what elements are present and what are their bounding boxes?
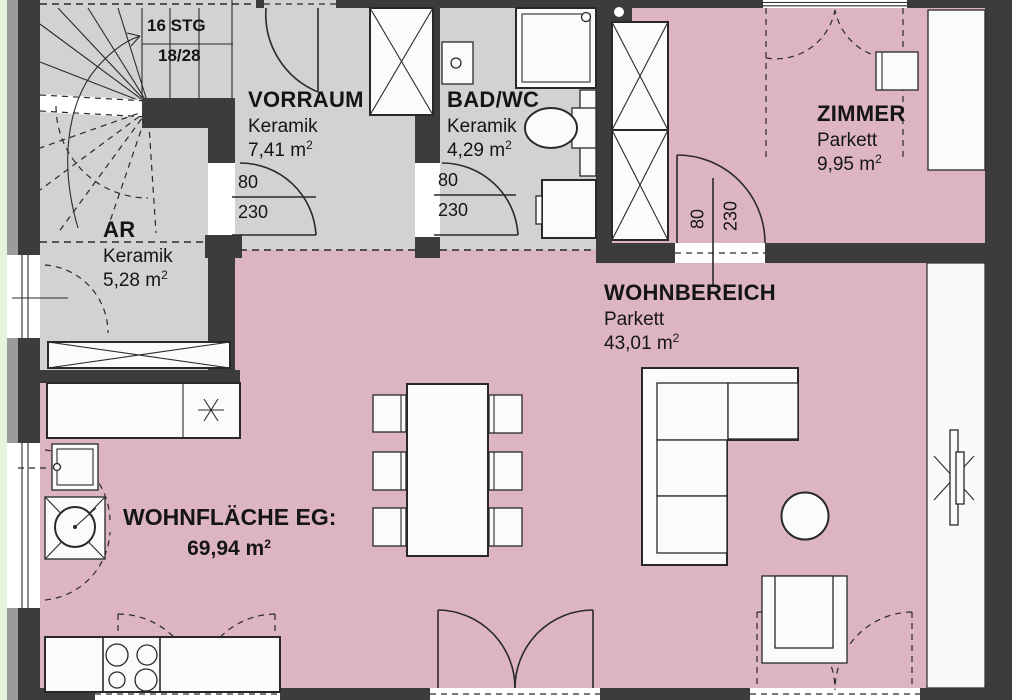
- floor-plan: 16 STG 18/28 VORRAUM Keramik 7,41 m2 BAD…: [0, 0, 1012, 700]
- room-area: 5,28 m2: [103, 271, 173, 291]
- kitchen-counter-bottom: [45, 637, 280, 692]
- shaft-duct-icon: [614, 7, 624, 17]
- zimmer-window-opening: [763, 0, 907, 8]
- outside-strip: [0, 0, 7, 700]
- zimmer-bottom-wall: [596, 243, 985, 263]
- burner: [135, 669, 157, 691]
- ar-bottom-wall: [40, 370, 240, 383]
- zimmer-nightstand: [876, 52, 918, 90]
- ar-cabinet: [48, 342, 230, 368]
- room-name: ZIMMER: [817, 102, 906, 125]
- zimmer-closet: [928, 10, 985, 170]
- ar-window-opening: [18, 255, 40, 338]
- zimmer-door-width: 80: [689, 209, 708, 229]
- room-area: 43,01 m2: [604, 334, 776, 354]
- room-label-zimmer: ZIMMER Parkett 9,95 m2: [817, 102, 906, 175]
- vorraum-door-width: 80: [238, 173, 258, 192]
- tv-cabinet: [762, 576, 847, 663]
- room-floor: Keramik: [103, 247, 173, 267]
- washing-machine: [536, 180, 596, 238]
- stairs-note-line2: 18/28: [158, 47, 201, 65]
- left-wall: [18, 0, 40, 255]
- room-name: AR: [103, 218, 173, 241]
- room-name: VORRAUM: [248, 88, 364, 111]
- top-wall: [344, 0, 763, 8]
- kitchen-counter-top: [47, 383, 240, 438]
- burner: [106, 644, 128, 666]
- shower: [516, 8, 596, 88]
- burner: [109, 672, 125, 688]
- room-floor: Parkett: [817, 131, 906, 151]
- dishwasher: [52, 444, 98, 490]
- room-name: BAD/WC: [447, 88, 539, 111]
- bad-door-height: 230: [438, 201, 468, 220]
- room-area: 4,29 m2: [447, 141, 539, 161]
- dining-table: [407, 384, 488, 556]
- room-label-ar: AR Keramik 5,28 m2: [103, 218, 173, 291]
- burner: [137, 645, 157, 665]
- room-name: WOHNBEREICH: [604, 281, 776, 304]
- room-label-vorraum: VORRAUM Keramik 7,41 m2: [248, 88, 364, 161]
- room-label-wohnbereich: WOHNBEREICH Parkett 43,01 m2: [604, 281, 776, 354]
- vorraum-door-opening: [208, 163, 235, 237]
- dining-set: [373, 384, 522, 556]
- stairs-note-line1: 16 STG: [147, 17, 206, 35]
- bad-right-wall: [596, 0, 612, 258]
- kitchen-sink: [45, 497, 105, 559]
- zimmer-wardrobe: [612, 22, 668, 240]
- room-area: 9,95 m2: [817, 155, 906, 175]
- area-summary-label: WOHNFLÄCHE EG:: [123, 505, 336, 529]
- zimmer-door-height: 230: [722, 201, 741, 231]
- room-floor: Keramik: [447, 117, 539, 137]
- room-area: 7,41 m2: [248, 141, 364, 161]
- vorraum-wardrobe: [370, 8, 433, 115]
- room-label-bad: BAD/WC Keramik 4,29 m2: [447, 88, 539, 161]
- right-wall: [985, 0, 1012, 700]
- room-floor: Parkett: [604, 310, 776, 330]
- washbasin: [442, 42, 473, 84]
- room-floor: Keramik: [248, 117, 364, 137]
- vorraum-door-height: 230: [238, 203, 268, 222]
- area-summary-value: 69,94 m2: [123, 538, 335, 560]
- bad-door-width: 80: [438, 171, 458, 190]
- coffee-table: [782, 493, 829, 540]
- stair-mid-wall: [142, 98, 235, 128]
